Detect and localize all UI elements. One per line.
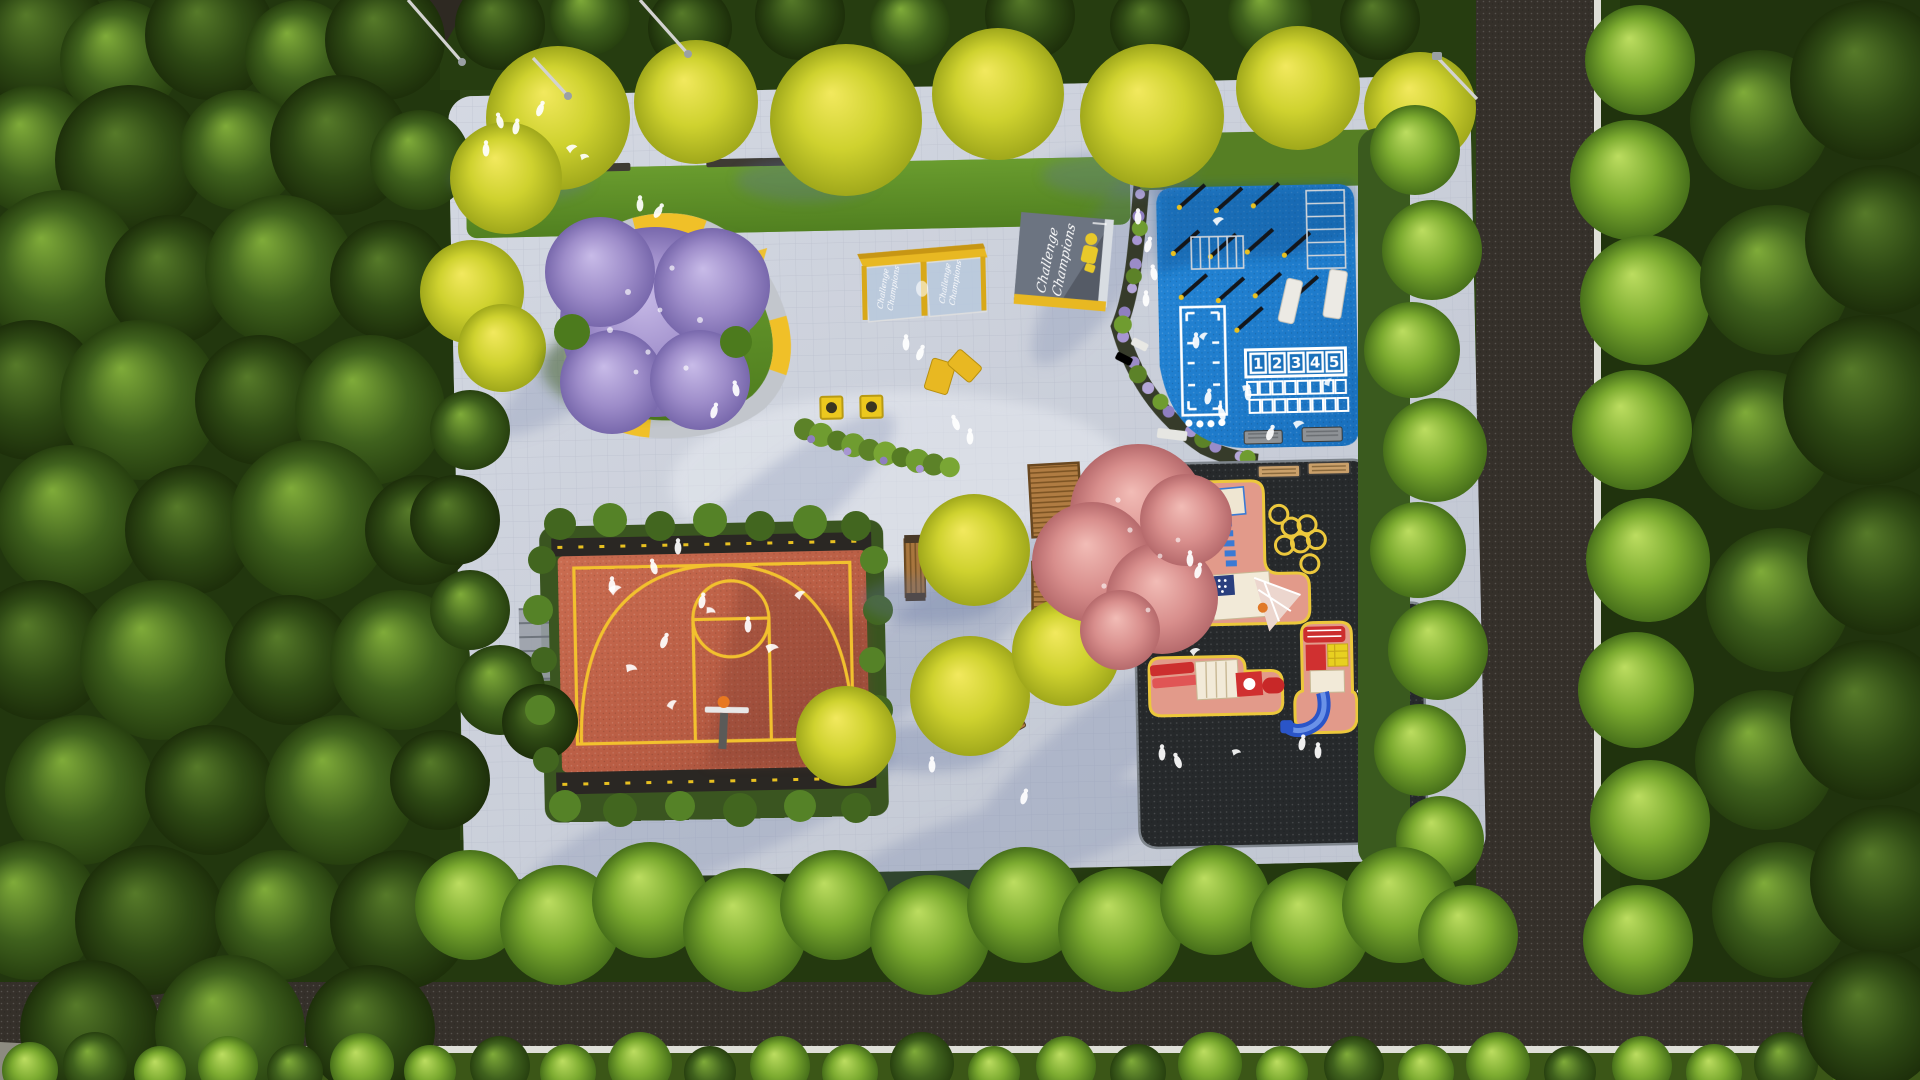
fitness-court: 1 2 3 4 5 xyxy=(1151,182,1359,450)
hopscotch-number-1: 1 xyxy=(1253,355,1264,373)
shelter-kiosk: Challenge Champions Challenge Champions xyxy=(857,243,989,322)
park-aerial-render: Challenge Champions Challenge Champions … xyxy=(0,0,1920,1080)
main-signboard: Challenge Champions xyxy=(1014,212,1114,311)
hopscotch-number-2: 2 xyxy=(1272,354,1283,372)
scene-canvas: Challenge Champions Challenge Champions … xyxy=(0,0,1920,1080)
jacaranda-tree xyxy=(542,217,770,434)
hopscotch-number-3: 3 xyxy=(1291,354,1302,372)
hopscotch-number-4: 4 xyxy=(1310,353,1321,371)
hopscotch-number-5: 5 xyxy=(1329,353,1340,371)
